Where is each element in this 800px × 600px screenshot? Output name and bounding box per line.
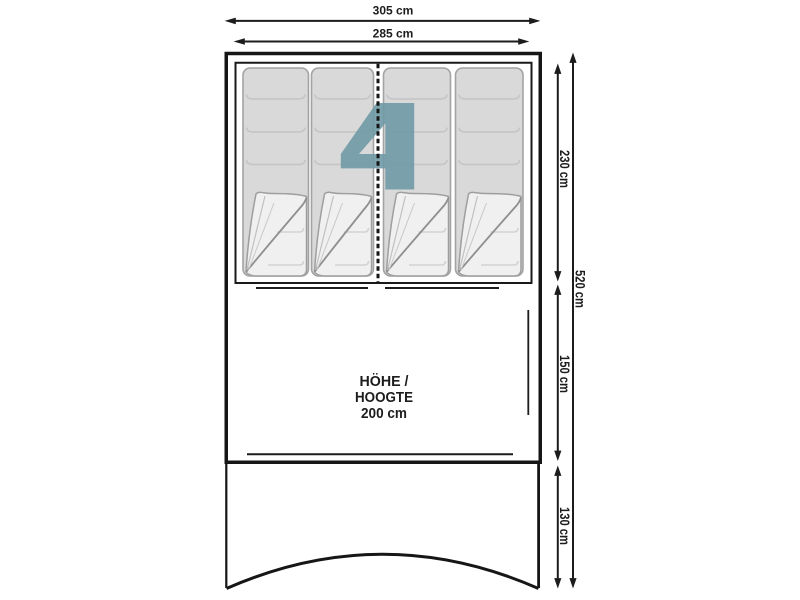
svg-text:HOOGTE: HOOGTE [355,390,413,406]
svg-text:285 cm: 285 cm [373,27,414,41]
svg-text:150 cm: 150 cm [557,355,573,393]
svg-text:HÖHE /: HÖHE / [360,373,409,390]
svg-text:130 cm: 130 cm [557,507,573,545]
svg-text:230 cm: 230 cm [557,150,573,188]
svg-text:200 cm: 200 cm [361,406,407,422]
svg-text:305 cm: 305 cm [373,4,414,18]
svg-text:520 cm: 520 cm [573,270,589,308]
